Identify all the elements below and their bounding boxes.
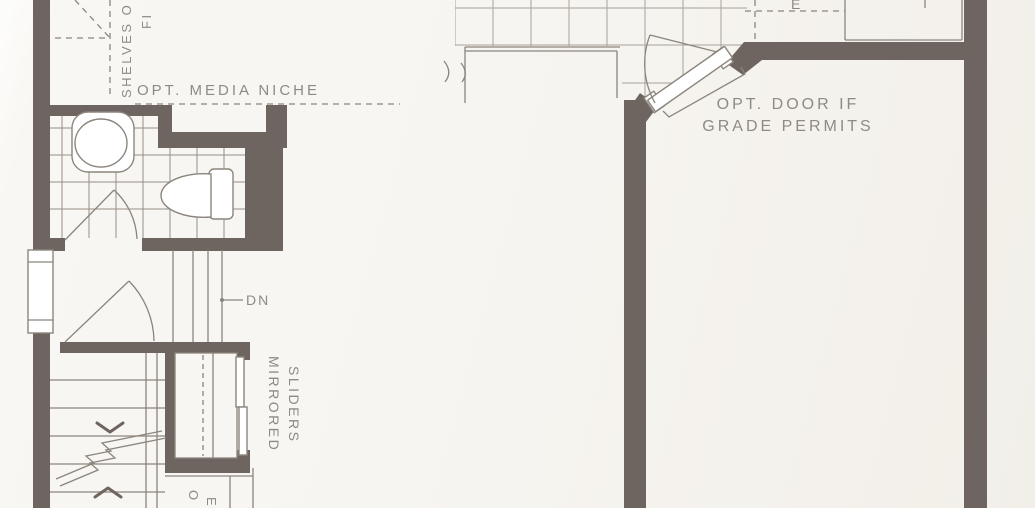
stair-arrow-down-icon [97,423,123,432]
linework [50,0,962,508]
niche-right-wall [266,105,287,148]
bottom-label-fragment-right: E [204,497,219,508]
media-niche-label: OPT. MEDIA NICHE [137,82,320,99]
media-niche-wall [163,132,270,148]
door-open-leaf [650,35,721,53]
right-outer-wall [964,0,987,508]
closet-top-wall [165,342,248,353]
hall-counter [465,47,620,103]
opt-door-label-line1: OPT. DOOR IF [703,96,873,114]
stair-header-wall [60,342,172,353]
sink-basin [75,119,127,167]
room-top-wall [757,42,967,60]
left-outer-wall-lower [33,333,50,508]
fireplace-label: FI [139,12,154,29]
shelves-label: SHELVES O [119,3,134,98]
walls [33,0,987,508]
stair-treads [50,380,165,492]
stair-rail [146,353,157,508]
shelves-dashed-outline [55,0,110,95]
opt-door-label-line2: GRADE PERMITS [688,118,888,136]
mirrored-label: MIRRORED [266,356,282,452]
floorplan-drawing [0,0,1035,508]
hall-tile-floor [450,0,750,110]
closet-interior [175,353,237,458]
bottom-label-fragment-left: O [186,490,201,502]
slider-panel-1 [236,357,244,407]
upper-stair-treads [173,250,222,342]
closet-bottom-wall [165,458,248,473]
closet-left-wall [165,342,175,473]
toilet-tank [209,169,233,219]
tick-marks [444,61,465,82]
room-left-wall [624,100,646,508]
dn-leader-dot [220,298,224,302]
bathroom-bottom-wall-left [33,238,65,251]
slider-panel-2 [239,407,247,455]
kitchen-counter-outline [845,0,962,40]
hall-door-swing [65,281,154,342]
bathroom-bottom-wall-right [142,238,283,251]
top-label-fragment: E [791,0,802,12]
toilet-bowl [161,174,211,218]
left-outer-wall-upper [33,0,50,252]
bathroom-door-swing [65,190,137,240]
floor-plan: OPT. MEDIA NICHE OPT. DOOR IF GRADE PERM… [0,0,1035,508]
bathroom-right-wall [245,146,283,250]
sliders-label: SLIDERS [286,366,302,443]
stair-break-line-2 [60,438,166,486]
down-label: DN [246,292,270,308]
